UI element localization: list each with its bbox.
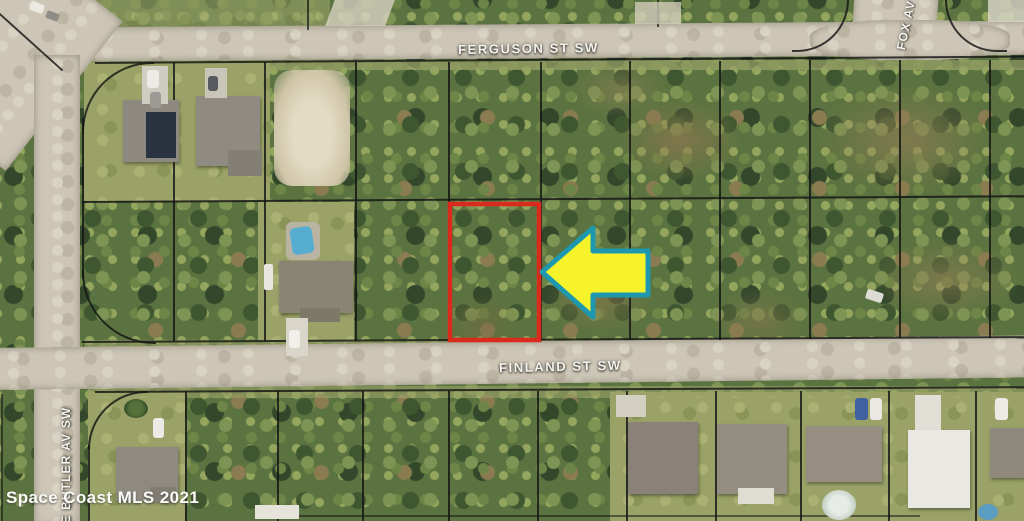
highlight-arrow-icon bbox=[542, 228, 648, 317]
watermark-text: Space Coast MLS 2021 bbox=[6, 488, 199, 508]
subject-parcel-outline bbox=[450, 204, 539, 340]
aerial-parcel-map: FERGUSON ST SW FINLAND ST SW FOX AV E BU… bbox=[0, 0, 1024, 521]
street-label-finland: FINLAND ST SW bbox=[499, 358, 622, 376]
street-label-ferguson: FERGUSON ST SW bbox=[458, 40, 599, 57]
highlight-overlay bbox=[0, 0, 1024, 521]
